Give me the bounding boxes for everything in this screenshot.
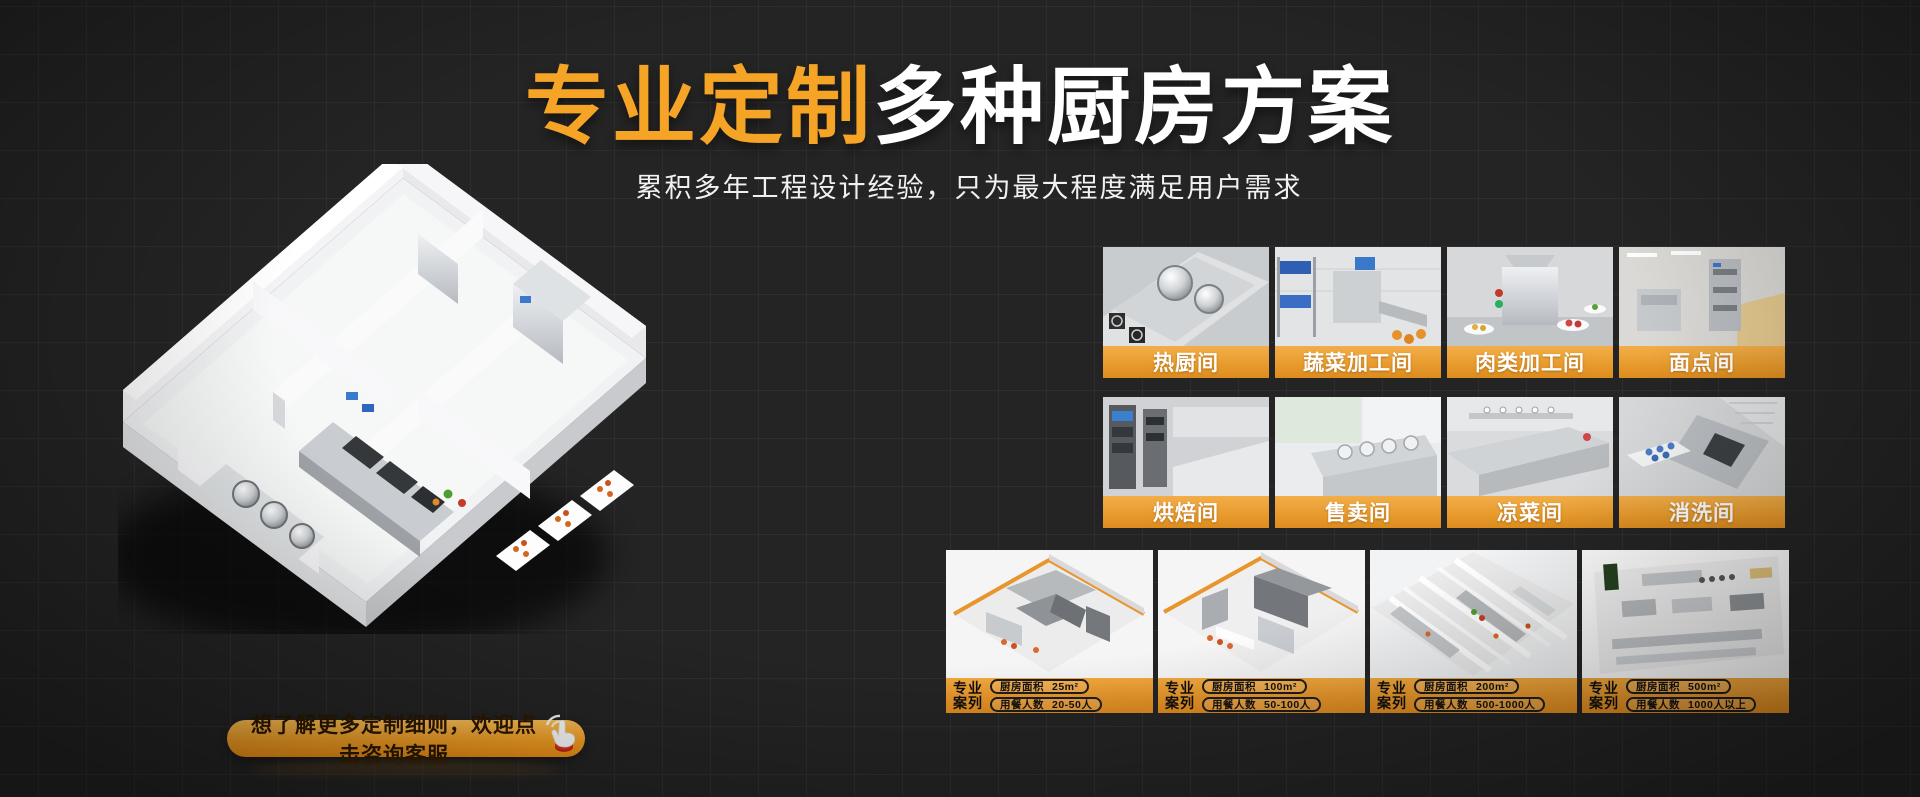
title-rest: 多种厨房方案 [873, 60, 1395, 154]
case-row: 专业 案列 厨房面积25m² 用餐人数20-50人 [946, 550, 1789, 713]
page-title: 专业定制多种厨房方案 [0, 60, 1920, 154]
room-grid: 热厨间 蔬菜加工间 [1103, 247, 1785, 528]
room-label: 消洗间 [1619, 496, 1785, 528]
room-label: 热厨间 [1103, 346, 1269, 378]
case-tag: 专业 案列 [1589, 681, 1619, 710]
case-tag: 专业 案列 [1377, 681, 1407, 710]
room-tile-baking[interactable]: 烘焙间 [1103, 397, 1269, 528]
case-render-500 [1582, 550, 1789, 678]
diners-pill: 用餐人数1000人以上 [1626, 697, 1756, 712]
case-card-25[interactable]: 专业 案列 厨房面积25m² 用餐人数20-50人 [946, 550, 1153, 713]
vegetable-processing-photo [1275, 247, 1441, 346]
room-label: 凉菜间 [1447, 496, 1613, 528]
floorplan-3d-render [118, 164, 650, 634]
kitchen-area-pill: 厨房面积25m² [990, 679, 1089, 694]
room-tile-meat-processing[interactable]: 肉类加工间 [1447, 247, 1613, 378]
room-label: 蔬菜加工间 [1275, 346, 1441, 378]
room-tile-dishwashing[interactable]: 消洗间 [1619, 397, 1785, 528]
case-tag: 专业 案列 [953, 681, 983, 710]
kitchen-solutions-banner: 专业定制多种厨房方案 累积多年工程设计经验，只为最大程度满足用户需求 [0, 0, 1920, 797]
cta-label: 想了解更多定制细则，欢迎点击咨询客服 [243, 709, 545, 769]
diners-pill: 用餐人数20-50人 [990, 697, 1102, 712]
room-tile-vegetable-processing[interactable]: 蔬菜加工间 [1275, 247, 1441, 378]
case-card-100[interactable]: 专业 案列 厨房面积100m² 用餐人数50-100人 [1158, 550, 1365, 713]
click-hand-icon [537, 711, 583, 757]
room-label: 肉类加工间 [1447, 346, 1613, 378]
kitchen-area-pill: 厨房面积500m² [1626, 679, 1731, 694]
kitchen-area-pill: 厨房面积100m² [1202, 679, 1307, 694]
diners-pill: 用餐人数50-100人 [1202, 697, 1321, 712]
case-card-200[interactable]: 专业 案列 厨房面积200m² 用餐人数500-1000人 [1370, 550, 1577, 713]
serving-room-photo [1275, 397, 1441, 496]
case-render-100 [1158, 550, 1365, 678]
cold-dish-room-photo [1447, 397, 1613, 496]
room-tile-cold-dish[interactable]: 凉菜间 [1447, 397, 1613, 528]
consult-cta-button[interactable]: 想了解更多定制细则，欢迎点击咨询客服 [227, 720, 585, 757]
case-tag: 专业 案列 [1165, 681, 1195, 710]
case-bar: 专业 案列 厨房面积25m² 用餐人数20-50人 [946, 678, 1153, 713]
kitchen-floorplan-illustration [118, 164, 650, 634]
dishwashing-room-photo [1619, 397, 1785, 496]
case-bar: 专业 案列 厨房面积500m² 用餐人数1000人以上 [1582, 678, 1789, 713]
room-label: 售卖间 [1275, 496, 1441, 528]
case-render-200 [1370, 550, 1577, 678]
room-label: 烘焙间 [1103, 496, 1269, 528]
room-tile-pastry[interactable]: 面点间 [1619, 247, 1785, 378]
room-tile-serving[interactable]: 售卖间 [1275, 397, 1441, 528]
case-bar: 专业 案列 厨房面积200m² 用餐人数500-1000人 [1370, 678, 1577, 713]
kitchen-area-pill: 厨房面积200m² [1414, 679, 1519, 694]
pastry-room-photo [1619, 247, 1785, 346]
room-label: 面点间 [1619, 346, 1785, 378]
room-tile-hot-kitchen[interactable]: 热厨间 [1103, 247, 1269, 378]
case-bar: 专业 案列 厨房面积100m² 用餐人数50-100人 [1158, 678, 1365, 713]
case-card-500[interactable]: 专业 案列 厨房面积500m² 用餐人数1000人以上 [1582, 550, 1789, 713]
meat-processing-photo [1447, 247, 1613, 346]
hot-kitchen-photo [1103, 247, 1269, 346]
diners-pill: 用餐人数500-1000人 [1414, 697, 1545, 712]
case-render-25 [946, 550, 1153, 678]
baking-room-photo [1103, 397, 1269, 496]
title-highlight: 专业定制 [525, 60, 873, 154]
